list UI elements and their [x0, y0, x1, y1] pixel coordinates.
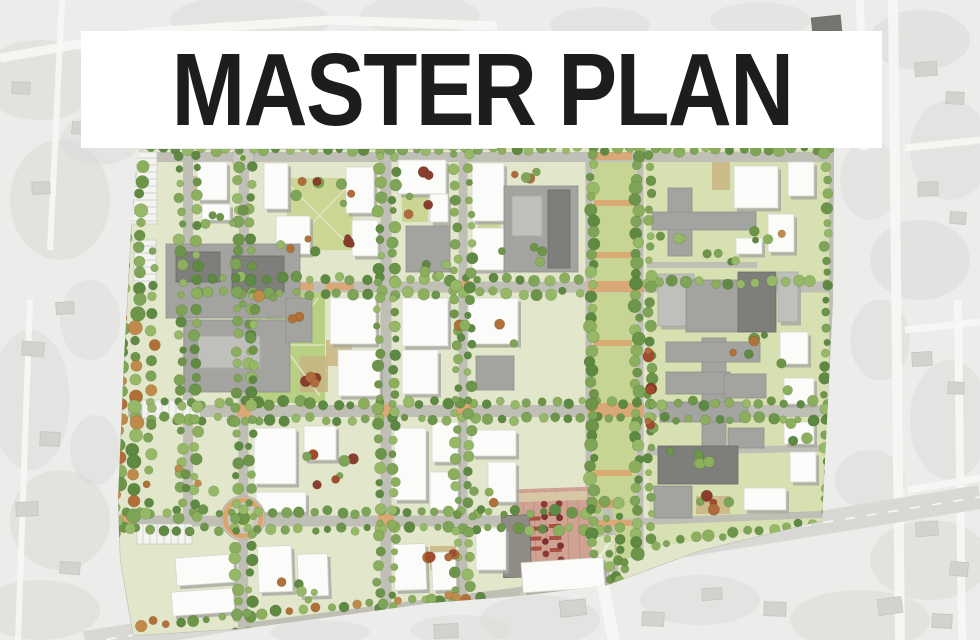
page-title: MASTER PLAN: [171, 38, 792, 141]
master-plan-page: MASTER PLAN: [0, 0, 980, 640]
title-banner: MASTER PLAN: [81, 31, 882, 148]
